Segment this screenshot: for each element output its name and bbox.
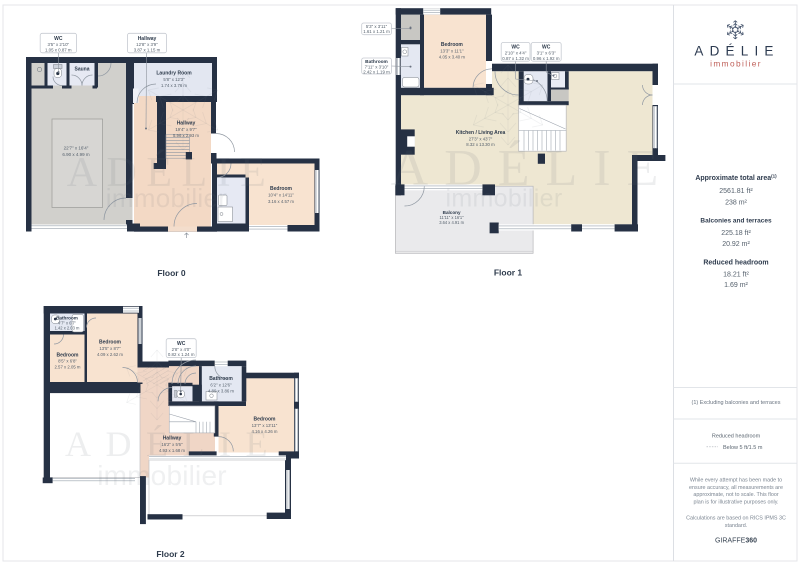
svg-text:(1) Excluding balconies and te: (1) Excluding balconies and terraces [692, 400, 781, 406]
svg-text:Reduced headroom: Reduced headroom [703, 260, 768, 267]
svg-text:8'5" x 6'8": 8'5" x 6'8" [58, 359, 77, 364]
svg-text:Floor 2: Floor 2 [156, 549, 185, 559]
svg-text:225.18 ft²: 225.18 ft² [721, 230, 751, 237]
svg-text:4.09 x 2.62 m: 4.09 x 2.62 m [97, 352, 123, 357]
svg-text:3.64 x 4.91 m: 3.64 x 4.91 m [439, 220, 464, 225]
svg-text:Bathroom: Bathroom [209, 376, 233, 382]
svg-text:ADÉLIE: ADÉLIE [694, 44, 779, 59]
svg-text:1.05 x 0.87 m: 1.05 x 0.87 m [45, 47, 72, 52]
svg-text:approximate, not to scale. Thi: approximate, not to scale. This floor [693, 492, 778, 498]
svg-text:Reduced headroom: Reduced headroom [712, 434, 761, 440]
svg-text:plan is for illustrative purpo: plan is for illustrative purposes only. [694, 499, 779, 505]
svg-text:Floor 0: Floor 0 [157, 268, 186, 278]
svg-text:13'3" x 11'1": 13'3" x 11'1" [440, 48, 464, 53]
svg-text:0.96 x 1.92 m: 0.96 x 1.92 m [533, 56, 560, 61]
svg-text:0.82 x 1.24 m: 0.82 x 1.24 m [168, 352, 195, 357]
svg-text:Balconies and terraces: Balconies and terraces [700, 218, 772, 225]
svg-text:GIRAFFE360: GIRAFFE360 [715, 538, 757, 545]
svg-text:12'8" x 3'9": 12'8" x 3'9" [136, 42, 158, 47]
svg-text:Sauna: Sauna [74, 67, 89, 73]
svg-text:Floor 1: Floor 1 [494, 268, 523, 278]
svg-text:18.21 ft²: 18.21 ft² [723, 272, 749, 279]
svg-text:19'4" x 9'7": 19'4" x 9'7" [175, 127, 197, 132]
svg-text:ensure accuracy, all measureme: ensure accuracy, all measurements are [689, 485, 783, 491]
svg-text:immobilier: immobilier [710, 59, 762, 69]
svg-text:immobilier: immobilier [97, 460, 227, 491]
svg-text:4.05 x 3.40 m: 4.05 x 3.40 m [439, 54, 465, 59]
svg-text:1.61 x 1.21 m: 1.61 x 1.21 m [363, 29, 390, 34]
svg-text:20.92 m²: 20.92 m² [722, 241, 750, 248]
svg-text:Kitchen / Living Area: Kitchen / Living Area [456, 130, 506, 136]
svg-text:1.69 m²: 1.69 m² [724, 282, 748, 289]
svg-text:immobilier: immobilier [446, 185, 563, 213]
svg-text:Bedroom: Bedroom [99, 340, 122, 346]
svg-text:Below 5 ft/1.5 m: Below 5 ft/1.5 m [723, 445, 763, 451]
svg-text:Bedroom: Bedroom [441, 42, 464, 48]
svg-text:Approximate total area(1): Approximate total area(1) [695, 174, 777, 183]
svg-text:238 m²: 238 m² [725, 200, 747, 207]
svg-text:6'2" x 12'6": 6'2" x 12'6" [210, 382, 232, 387]
svg-text:13'5" x 8'7": 13'5" x 8'7" [99, 346, 121, 351]
svg-text:2.57 x 2.05 m: 2.57 x 2.05 m [54, 364, 80, 369]
svg-text:5'8" x 12'3": 5'8" x 12'3" [163, 77, 185, 82]
svg-text:2561.81 ft²: 2561.81 ft² [719, 188, 753, 195]
svg-text:Bedroom: Bedroom [254, 417, 277, 423]
svg-text:0.87 x 1.32 m: 0.87 x 1.32 m [502, 56, 529, 61]
svg-text:Bathroom: Bathroom [56, 315, 78, 320]
svg-text:While every attempt has been m: While every attempt has been made to [690, 478, 782, 484]
svg-text:ADÉLIE: ADÉLIE [65, 424, 282, 464]
svg-text:3.16 x 4.57 m: 3.16 x 4.57 m [268, 199, 294, 204]
svg-text:immobilier: immobilier [106, 183, 228, 213]
svg-text:Hallway: Hallway [138, 36, 157, 42]
svg-text:1.42 x 2.03 m: 1.42 x 2.03 m [55, 326, 80, 331]
svg-text:Calculations are based on RICS: Calculations are based on RICS IPMS 3C [686, 516, 786, 522]
svg-text:4.89 x 3.86 m: 4.89 x 3.86 m [208, 388, 234, 393]
svg-text:standard.: standard. [725, 523, 747, 529]
svg-text:Laundry Room: Laundry Room [156, 71, 192, 77]
svg-text:2.42 x 1.19 m: 2.42 x 1.19 m [363, 69, 390, 74]
svg-text:3'5" x 2'10": 3'5" x 2'10" [47, 42, 69, 47]
svg-text:WC: WC [54, 36, 63, 42]
svg-text:3.87 x 1.15 m: 3.87 x 1.15 m [134, 47, 161, 52]
